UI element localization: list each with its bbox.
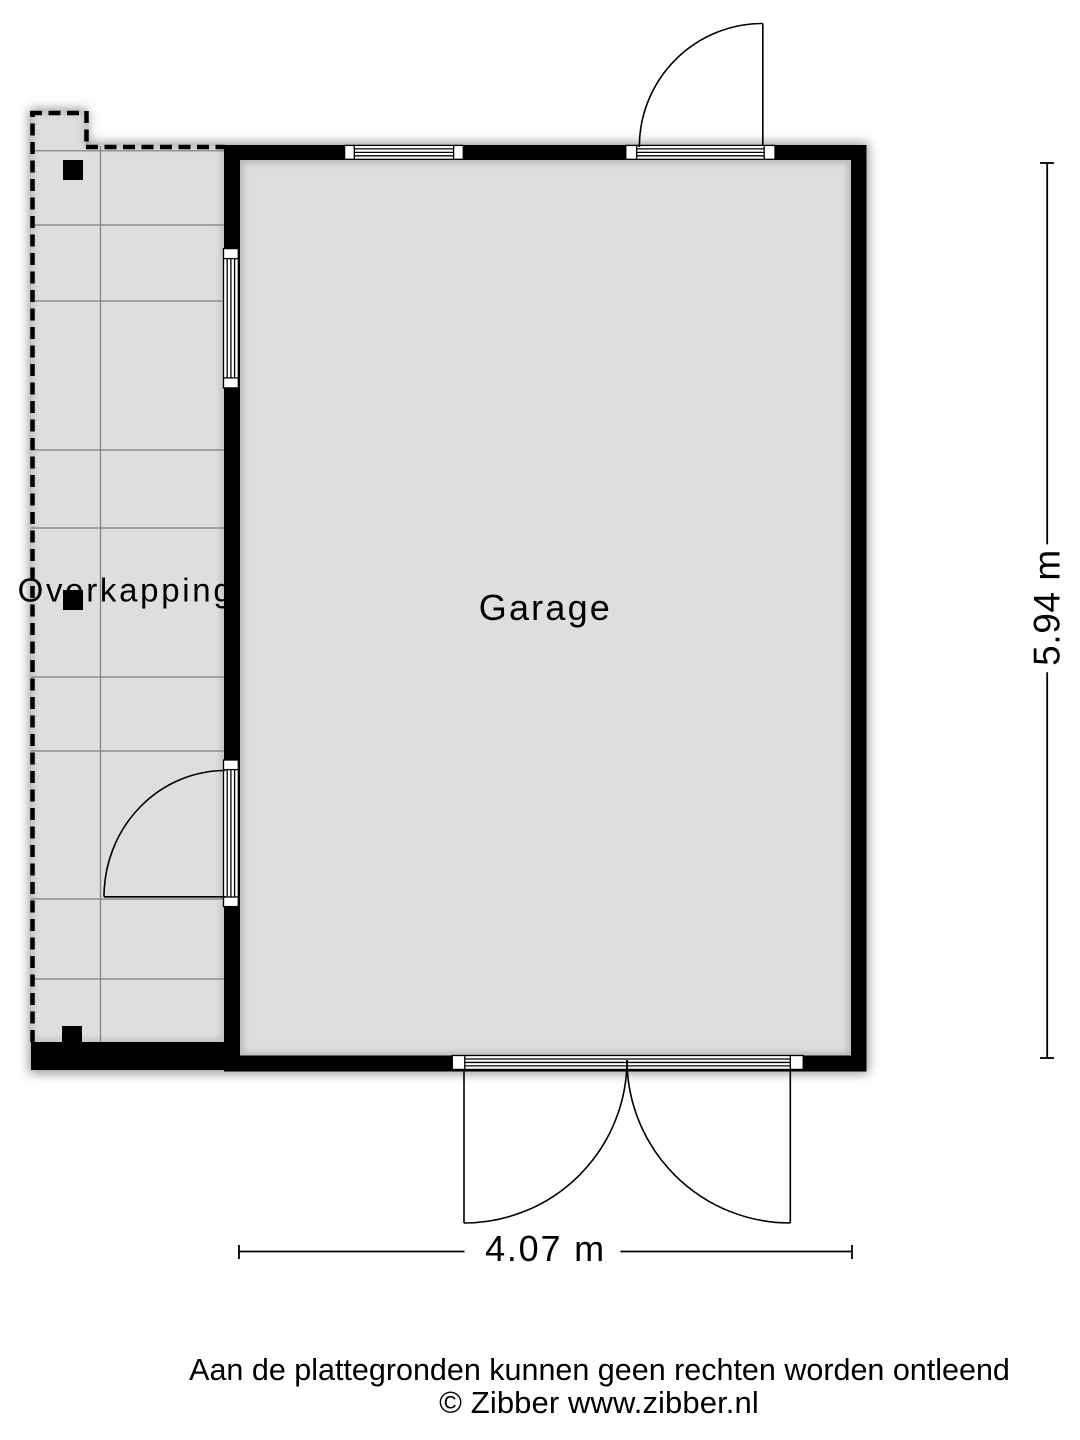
svg-text:Garage: Garage: [479, 587, 612, 628]
svg-text:4.07 m: 4.07 m: [485, 1228, 606, 1269]
svg-text:Aan de plattegronden kunnen ge: Aan de plattegronden kunnen geen rechten…: [189, 1353, 1010, 1387]
svg-text:© Zibber www.zibber.nl: © Zibber www.zibber.nl: [439, 1385, 759, 1420]
svg-text:5.94 m: 5.94 m: [1027, 549, 1068, 666]
svg-text:Overkapping: Overkapping: [18, 572, 235, 609]
